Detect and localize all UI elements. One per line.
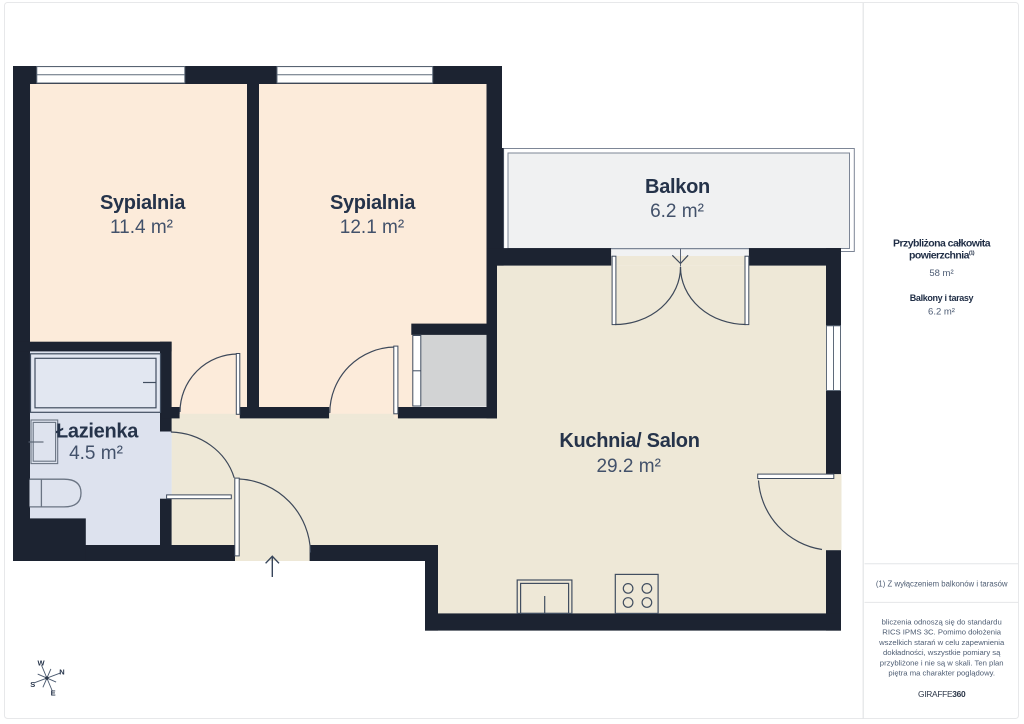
svg-text:piętra ma charakter poglądowy.: piętra ma charakter poglądowy. [888, 669, 995, 678]
svg-text:W: W [38, 659, 46, 668]
svg-text:12.1 m²: 12.1 m² [340, 217, 404, 238]
svg-text:29.2 m²: 29.2 m² [596, 456, 660, 477]
svg-text:58 m²: 58 m² [929, 268, 953, 279]
svg-text:6.2 m²: 6.2 m² [928, 307, 955, 318]
svg-text:GIRAFFE360: GIRAFFE360 [918, 689, 966, 699]
svg-text:Łazienka: Łazienka [56, 421, 139, 443]
svg-text:4.5 m²: 4.5 m² [69, 443, 123, 464]
svg-text:wszelkich starań w celu zapewn: wszelkich starań w celu zapewnienia [878, 638, 1005, 647]
svg-text:S: S [30, 680, 35, 689]
svg-text:E: E [51, 689, 56, 698]
svg-text:powierzchnia(1): powierzchnia(1) [909, 250, 975, 262]
svg-text:6.2 m²: 6.2 m² [650, 201, 704, 222]
svg-text:(1) Z wyłączeniem balkonów i t: (1) Z wyłączeniem balkonów i tarasów [876, 580, 1008, 589]
svg-text:Kuchnia/ Salon: Kuchnia/ Salon [559, 430, 699, 452]
svg-text:RICS IPMS 3C. Pomimo dołożenia: RICS IPMS 3C. Pomimo dołożenia [882, 628, 1001, 637]
svg-text:N: N [59, 668, 64, 677]
svg-text:Balkony i tarasy: Balkony i tarasy [910, 293, 974, 303]
svg-text:dokładności, wszystkie pomiary: dokładności, wszystkie pomiary są [883, 648, 1001, 657]
svg-text:11.4 m²: 11.4 m² [110, 217, 173, 238]
svg-text:Balkon: Balkon [645, 176, 710, 198]
svg-text:bliczenia odnoszą się do stand: bliczenia odnoszą się do standardu [882, 618, 1002, 627]
svg-text:Sypialnia: Sypialnia [100, 192, 186, 214]
svg-text:przybliżone i nie są w skali.: przybliżone i nie są w skali. Ten plan [880, 658, 1004, 667]
svg-text:Przybliżona całkowita: Przybliżona całkowita [893, 237, 991, 249]
svg-text:Sypialnia: Sypialnia [330, 192, 416, 214]
